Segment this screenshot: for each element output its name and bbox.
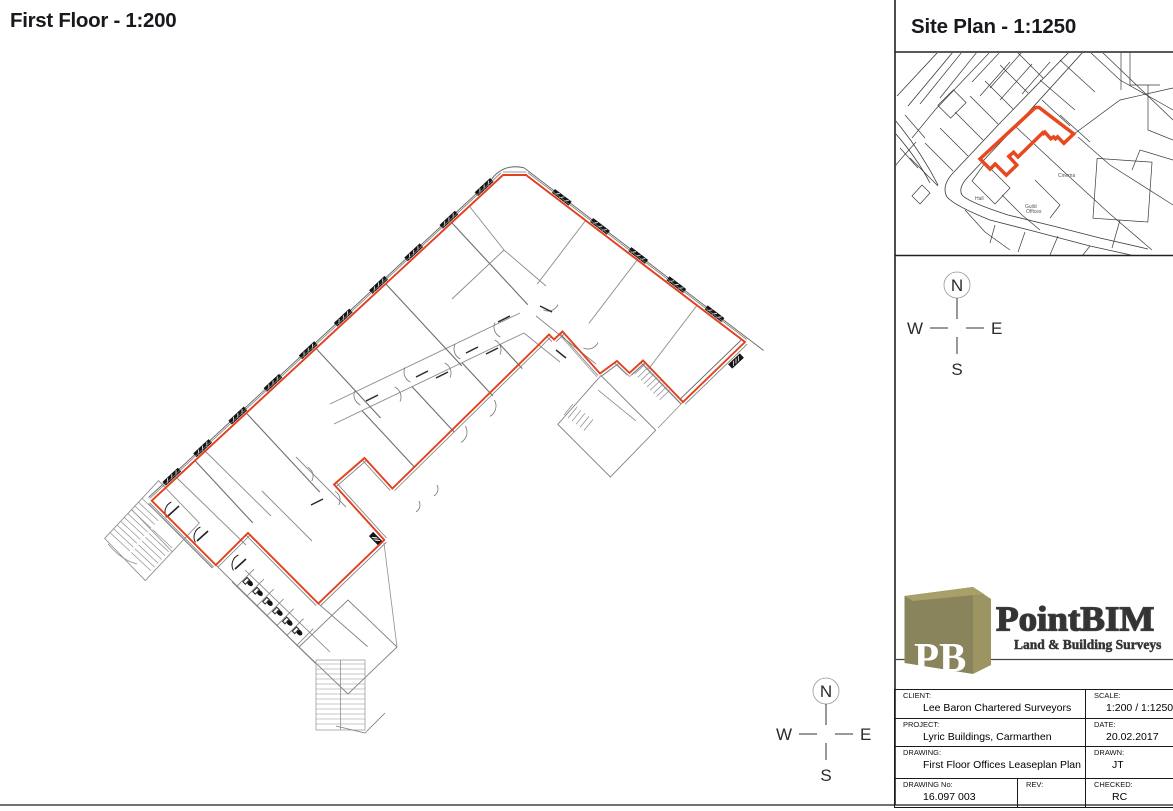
svg-text:S: S bbox=[820, 766, 831, 785]
svg-text:W: W bbox=[776, 725, 792, 744]
svg-text:W: W bbox=[907, 319, 923, 338]
svg-text:Offices: Offices bbox=[1026, 209, 1042, 215]
svg-text:N: N bbox=[951, 276, 963, 295]
svg-text:PB: PB bbox=[914, 634, 966, 680]
svg-text:Cinema: Cinema bbox=[1058, 173, 1075, 179]
svg-text:E: E bbox=[860, 725, 871, 744]
svg-text:E: E bbox=[991, 319, 1002, 338]
svg-text:S: S bbox=[951, 360, 962, 379]
svg-text:N: N bbox=[820, 682, 832, 701]
svg-text:Hall: Hall bbox=[975, 196, 984, 202]
